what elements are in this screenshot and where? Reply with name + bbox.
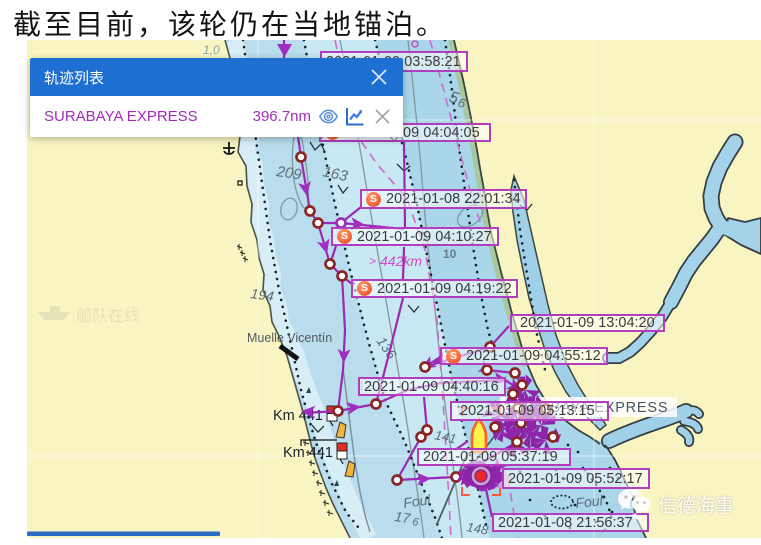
svg-text:Km 441: Km 441	[273, 408, 323, 424]
svg-text:Foul: Foul	[575, 492, 605, 511]
svg-text:194: 194	[250, 285, 276, 304]
svg-text:Muelle Vicentín: Muelle Vicentín	[247, 331, 332, 345]
svg-text:>: >	[369, 254, 376, 268]
svg-text:Km 441: Km 441	[283, 445, 333, 461]
svg-text:1,0: 1,0	[203, 43, 220, 57]
svg-text:10: 10	[443, 247, 457, 261]
svg-text:船队在线: 船队在线	[76, 307, 140, 325]
svg-text:442km: 442km	[380, 253, 422, 269]
